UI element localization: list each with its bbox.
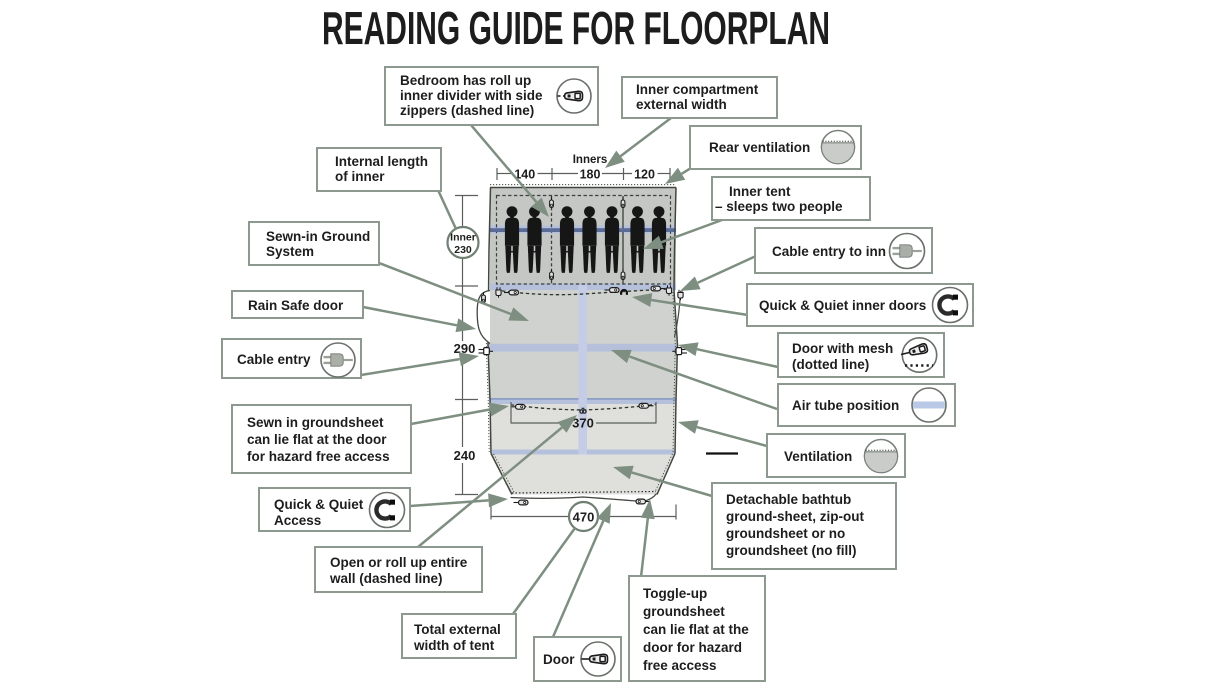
svg-text:zippers (dashed line): zippers (dashed line) xyxy=(400,103,534,118)
svg-text:groundsheet or no: groundsheet or no xyxy=(726,526,845,541)
svg-text:Cable entry to inn: Cable entry to inn xyxy=(772,244,886,259)
svg-text:120: 120 xyxy=(634,168,655,182)
svg-text:free access: free access xyxy=(643,658,717,673)
svg-text:groundsheet (no fill): groundsheet (no fill) xyxy=(726,543,857,558)
svg-text:– sleeps two people: – sleeps two people xyxy=(715,199,843,214)
svg-text:Rear ventilation: Rear ventilation xyxy=(709,140,810,155)
svg-text:Inner compartment: Inner compartment xyxy=(636,82,759,97)
svg-text:width of tent: width of tent xyxy=(413,638,495,653)
svg-text:Door with mesh: Door with mesh xyxy=(792,341,893,356)
svg-text:Inners: Inners xyxy=(573,154,608,166)
svg-text:ground-sheet, zip-out: ground-sheet, zip-out xyxy=(726,509,864,524)
svg-text:wall (dashed line): wall (dashed line) xyxy=(329,571,443,586)
svg-text:Quick & Quiet: Quick & Quiet xyxy=(274,497,364,512)
svg-text:inner divider with side: inner divider with side xyxy=(400,88,543,103)
svg-text:READING GUIDE FOR FLOORPLAN: READING GUIDE FOR FLOORPLAN xyxy=(322,2,830,54)
svg-text:Sewn in groundsheet: Sewn in groundsheet xyxy=(247,415,384,430)
svg-text:for hazard free access: for hazard free access xyxy=(247,449,390,464)
svg-text:470: 470 xyxy=(573,510,595,525)
svg-text:can lie flat at the: can lie flat at the xyxy=(643,622,749,637)
svg-text:230: 230 xyxy=(454,244,472,256)
svg-text:Toggle-up: Toggle-up xyxy=(643,586,707,601)
svg-text:Inner: Inner xyxy=(450,232,476,244)
svg-text:Cable entry: Cable entry xyxy=(237,352,311,367)
svg-text:door for hazard: door for hazard xyxy=(643,640,742,655)
svg-text:of inner: of inner xyxy=(335,169,385,184)
svg-text:Bedroom has roll up: Bedroom has roll up xyxy=(400,73,531,88)
svg-text:groundsheet: groundsheet xyxy=(643,604,725,619)
svg-text:Open or roll up entire: Open or roll up entire xyxy=(330,555,468,570)
svg-text:240: 240 xyxy=(454,448,476,463)
svg-text:Sewn-in Ground: Sewn-in Ground xyxy=(266,229,370,244)
svg-text:Access: Access xyxy=(274,513,321,528)
svg-text:System: System xyxy=(266,244,314,259)
svg-text:Detachable bathtub: Detachable bathtub xyxy=(726,492,851,507)
svg-text:Inner tent: Inner tent xyxy=(729,184,791,199)
svg-text:can lie flat at the door: can lie flat at the door xyxy=(247,432,387,447)
svg-text:180: 180 xyxy=(580,168,601,182)
svg-text:external width: external width xyxy=(636,97,727,112)
svg-text:Air tube position: Air tube position xyxy=(792,398,899,413)
svg-text:Internal length: Internal length xyxy=(335,154,428,169)
svg-text:(dotted line): (dotted line) xyxy=(792,357,869,372)
svg-text:Ventilation: Ventilation xyxy=(784,449,852,464)
svg-text:Total external: Total external xyxy=(414,622,501,637)
svg-text:Door: Door xyxy=(543,652,575,667)
svg-text:Quick & Quiet inner doors: Quick & Quiet inner doors xyxy=(759,298,926,313)
svg-text:Rain Safe door: Rain Safe door xyxy=(248,298,344,313)
svg-text:370: 370 xyxy=(572,416,594,431)
